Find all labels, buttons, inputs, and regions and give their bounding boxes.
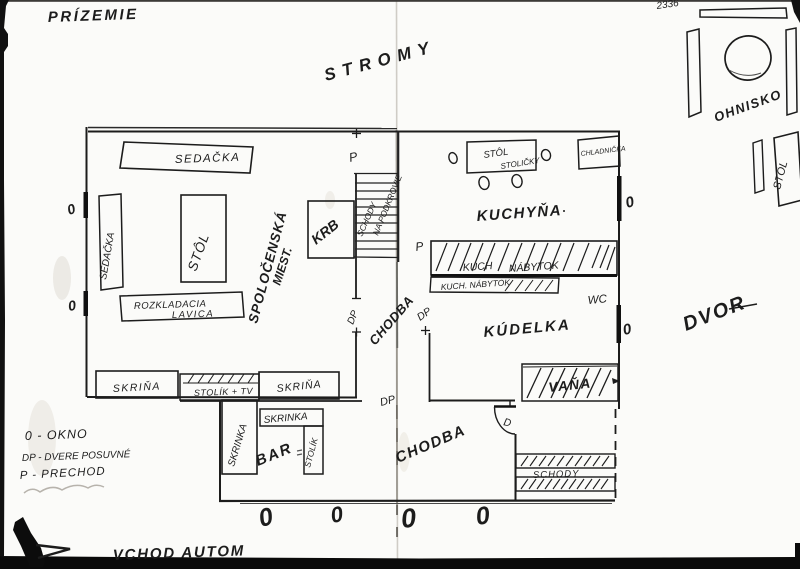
svg-text:0: 0 xyxy=(399,503,417,534)
svg-text:STOLÍK + TV: STOLÍK + TV xyxy=(194,386,254,398)
svg-text:WC: WC xyxy=(587,293,608,307)
svg-text:SKRIŇA: SKRIŇA xyxy=(112,379,161,394)
svg-text:PRÍZEMIE: PRÍZEMIE xyxy=(48,6,139,26)
svg-text:LAVICA: LAVICA xyxy=(172,309,215,321)
svg-text:KUCH: KUCH xyxy=(462,260,493,274)
svg-text:0 - OKNO: 0 - OKNO xyxy=(25,427,88,443)
svg-text:SEDAČKA: SEDAČKA xyxy=(175,151,241,166)
svg-text:SCHODY: SCHODY xyxy=(533,468,580,481)
